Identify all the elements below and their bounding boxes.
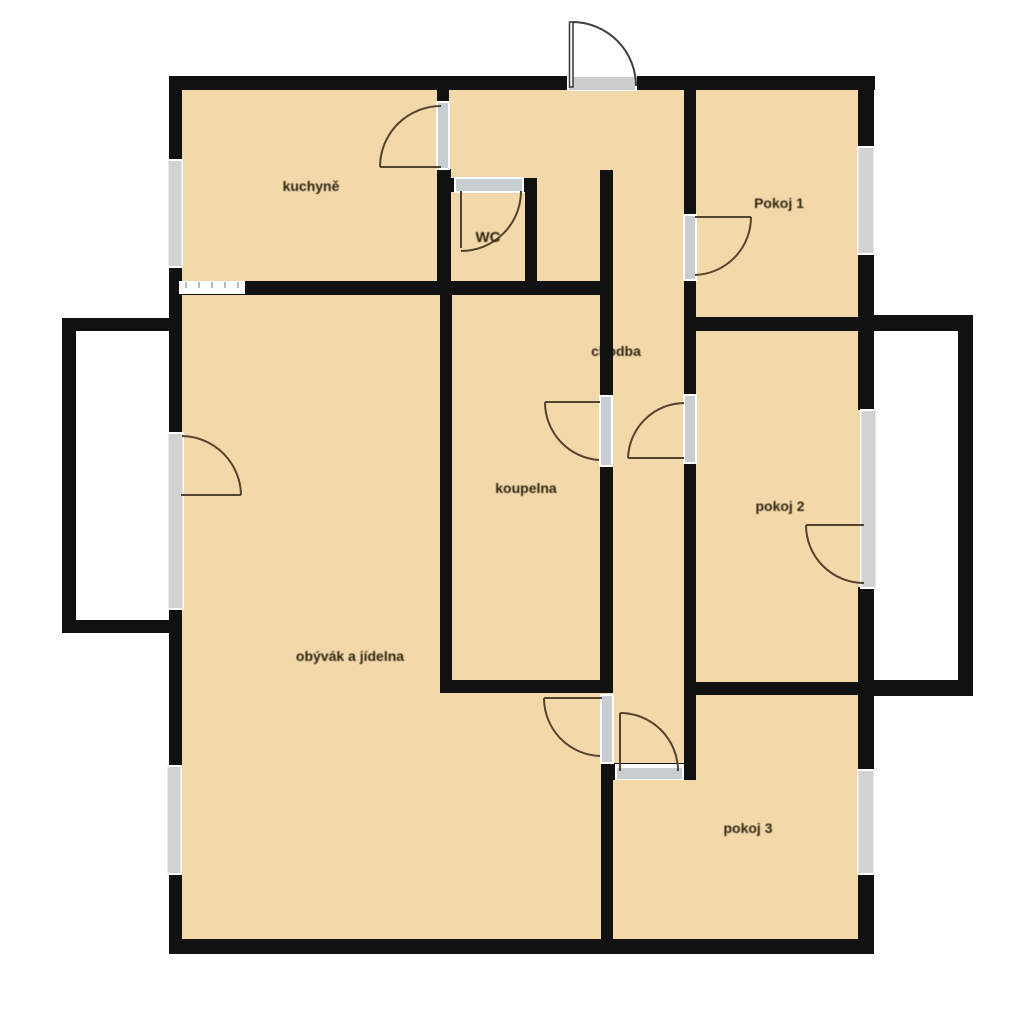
svg-text:WC: WC bbox=[476, 229, 501, 246]
svg-text:kuchyně: kuchyně bbox=[283, 178, 340, 194]
svg-text:pokoj 2: pokoj 2 bbox=[755, 498, 804, 514]
svg-text:obývák a jídelna: obývák a jídelna bbox=[296, 648, 404, 664]
svg-text:koupelna: koupelna bbox=[495, 480, 557, 496]
svg-text:chodba: chodba bbox=[591, 343, 641, 359]
svg-text:Pokoj 1: Pokoj 1 bbox=[754, 195, 804, 211]
svg-text:pokoj 3: pokoj 3 bbox=[723, 820, 772, 836]
